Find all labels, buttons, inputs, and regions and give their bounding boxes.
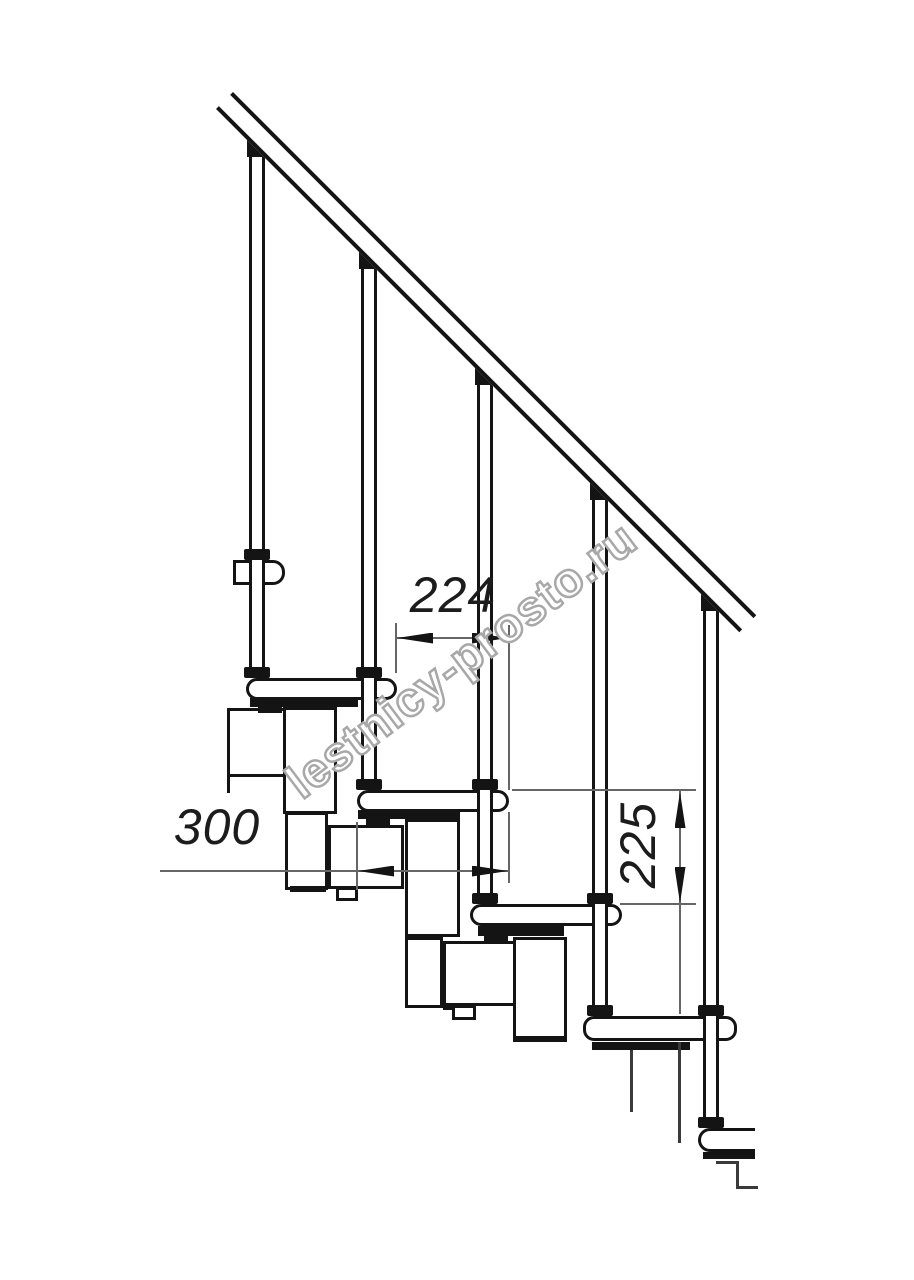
- watermark-text: lestnicy-prosto.ru: [241, 483, 682, 840]
- dim-300-line: [160, 870, 510, 872]
- support-box-2-tab: [452, 1005, 476, 1020]
- technical-drawing-canvas: 224 300 225 lestnicy-prosto.ru: [0, 0, 914, 1280]
- collar-post1-tread1: [244, 667, 270, 678]
- dim-225-arrow-down: [675, 867, 686, 903]
- support-box-1-foot: [290, 886, 326, 892]
- mount-tab-tread2: [366, 819, 390, 825]
- collar-post4-tread3: [587, 893, 613, 904]
- collar-post4-tread4: [587, 1005, 613, 1016]
- dim-225-line-continuation: [679, 904, 681, 1014]
- dim-225-ext-top: [512, 789, 696, 791]
- tread-5-cut: [698, 1128, 755, 1152]
- dim-225-ext-bottom: [620, 903, 696, 905]
- collar-post2-tread1: [356, 667, 382, 678]
- mount-tab-tread3: [484, 936, 508, 942]
- dim-224-ext-right-lower: [508, 812, 510, 883]
- support-column-3: [513, 937, 567, 1041]
- collar-post5-tread4: [698, 1005, 724, 1016]
- support-column-2: [405, 819, 460, 937]
- mount-tab-tread1: [258, 707, 282, 713]
- support-column-4-edge-right: [678, 1042, 681, 1143]
- baluster-1: [249, 152, 265, 667]
- support-column-2-lower: [405, 937, 443, 1008]
- mount-plate-tread5: [703, 1152, 755, 1159]
- dim-225-arrow-up: [675, 792, 686, 828]
- collar-post1-tread0: [244, 549, 270, 560]
- dim-225-label: 225: [613, 790, 663, 900]
- lower-step-edge-a: [716, 1161, 738, 1164]
- support-column-3-foot: [513, 1036, 567, 1042]
- lower-step-edge-b: [736, 1161, 739, 1188]
- support-column-4-edge-left: [630, 1050, 633, 1112]
- support-box-1: [328, 825, 404, 889]
- support-box-2: [443, 941, 519, 1006]
- lower-step-edge-c: [736, 1186, 758, 1189]
- collar-post5-tread5: [698, 1117, 724, 1128]
- support-box-1-tab: [336, 887, 358, 901]
- collar-post3-tread2: [472, 779, 498, 790]
- dim-300-label: 300: [162, 802, 272, 852]
- collar-post3-tread3: [472, 893, 498, 904]
- mount-plate-tread4: [592, 1042, 690, 1050]
- baluster-5: [703, 606, 719, 1117]
- mount-plate-tread3: [478, 926, 564, 936]
- support-box-upper-tail: [227, 775, 230, 793]
- dim-300-ext-left: [356, 822, 358, 890]
